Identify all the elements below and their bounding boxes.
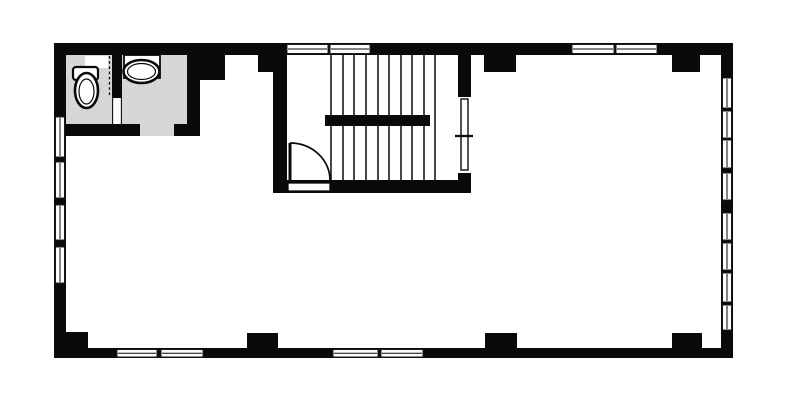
floor-plan-svg — [0, 0, 787, 401]
bathroom-partition-doorway — [112, 98, 122, 124]
bathroom-wall-bottom-right — [174, 124, 200, 136]
bathroom-doorway-floor — [140, 124, 174, 136]
bathroom-partition — [112, 55, 122, 98]
column-top-bathroom — [200, 55, 225, 80]
column-bottom-mid-left — [247, 333, 278, 348]
bathroom-wall-right — [187, 55, 200, 136]
column-bottom-right — [672, 333, 702, 348]
column-top-right — [672, 55, 700, 72]
outer-wall-left — [54, 43, 66, 358]
stairwell-side-door-leaf — [461, 99, 468, 170]
bathroom-wall-bottom-left — [66, 124, 140, 136]
stairwell-wall-left — [273, 55, 287, 193]
column-bottom-left — [66, 332, 88, 348]
column-top-mid-right — [484, 55, 516, 72]
stair-landing-bar — [325, 115, 430, 126]
floor-plan-page — [0, 0, 787, 401]
column-bottom-mid-right — [485, 333, 517, 348]
stair-entry-door-threshold — [288, 183, 330, 191]
stairwell-wall-right-upper — [458, 55, 471, 97]
